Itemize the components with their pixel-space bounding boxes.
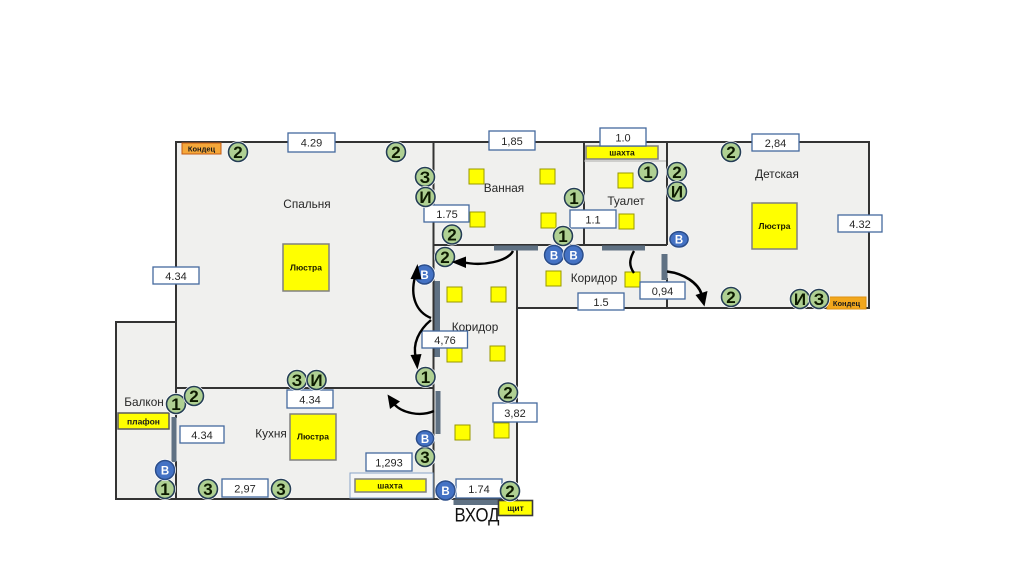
svg-text:З: З [292,371,303,390]
svg-text:Туалет: Туалет [607,194,645,208]
svg-text:1.75: 1.75 [436,209,457,221]
svg-text:3,82: 3,82 [504,408,525,420]
svg-text:2: 2 [233,143,242,162]
svg-text:З: З [814,290,825,309]
svg-text:И: И [794,290,806,309]
svg-text:2: 2 [447,226,456,245]
svg-text:4.29: 4.29 [301,138,322,150]
svg-text:1.1: 1.1 [585,215,600,227]
svg-text:1: 1 [643,163,652,182]
svg-text:1.5: 1.5 [593,297,608,309]
svg-text:В: В [161,466,169,478]
svg-text:В: В [675,235,683,247]
svg-text:Кондец: Кондец [833,299,861,308]
svg-text:Ванная: Ванная [484,181,524,195]
svg-text:2: 2 [726,288,735,307]
svg-text:1: 1 [421,368,430,387]
svg-text:В: В [550,251,558,263]
svg-text:2: 2 [391,143,400,162]
svg-text:И: И [671,183,683,202]
svg-text:Люстра: Люстра [759,221,791,231]
svg-text:Балкон: Балкон [124,395,164,409]
svg-text:2,97: 2,97 [234,484,255,496]
svg-text:ВХОД: ВХОД [455,505,500,527]
svg-text:2: 2 [505,482,514,501]
svg-text:1: 1 [160,480,169,499]
svg-text:Спальня: Спальня [283,197,330,211]
svg-text:щит: щит [507,503,524,513]
svg-text:4.32: 4.32 [849,219,870,231]
svg-text:1: 1 [171,395,180,414]
svg-text:1.74: 1.74 [468,484,489,496]
svg-text:2,84: 2,84 [765,138,786,150]
svg-text:2: 2 [189,387,198,406]
svg-text:В: В [569,251,577,263]
svg-text:3: 3 [420,448,429,467]
svg-text:2: 2 [440,248,449,267]
svg-text:4.34: 4.34 [299,395,320,407]
svg-text:1,293: 1,293 [375,458,403,470]
svg-text:1.0: 1.0 [615,133,630,145]
svg-text:2: 2 [672,163,681,182]
svg-text:И: И [419,188,431,207]
svg-text:З: З [420,168,431,187]
svg-text:Люстра: Люстра [297,432,329,442]
svg-text:В: В [441,486,449,498]
svg-text:2: 2 [726,143,735,162]
svg-text:В: В [421,434,429,446]
svg-text:2: 2 [503,384,512,403]
svg-text:4.34: 4.34 [165,271,186,283]
svg-text:В: В [420,270,428,282]
svg-text:Детская: Детская [755,167,799,181]
svg-text:Кухня: Кухня [255,427,287,441]
svg-text:Кондец: Кондец [188,145,216,154]
svg-text:плафон: плафон [127,417,160,427]
svg-text:3: 3 [276,480,285,499]
svg-text:1,85: 1,85 [501,136,522,148]
svg-text:3: 3 [203,480,212,499]
svg-text:Коридор: Коридор [571,271,618,285]
svg-text:1: 1 [558,227,567,246]
svg-text:шахта: шахта [609,148,635,158]
svg-text:1: 1 [569,189,578,208]
svg-text:шахта: шахта [377,481,403,491]
svg-text:И: И [310,371,322,390]
svg-text:Люстра: Люстра [290,263,322,273]
svg-text:0,94: 0,94 [652,286,673,298]
svg-text:4.34: 4.34 [191,430,212,442]
svg-text:4,76: 4,76 [434,335,455,347]
